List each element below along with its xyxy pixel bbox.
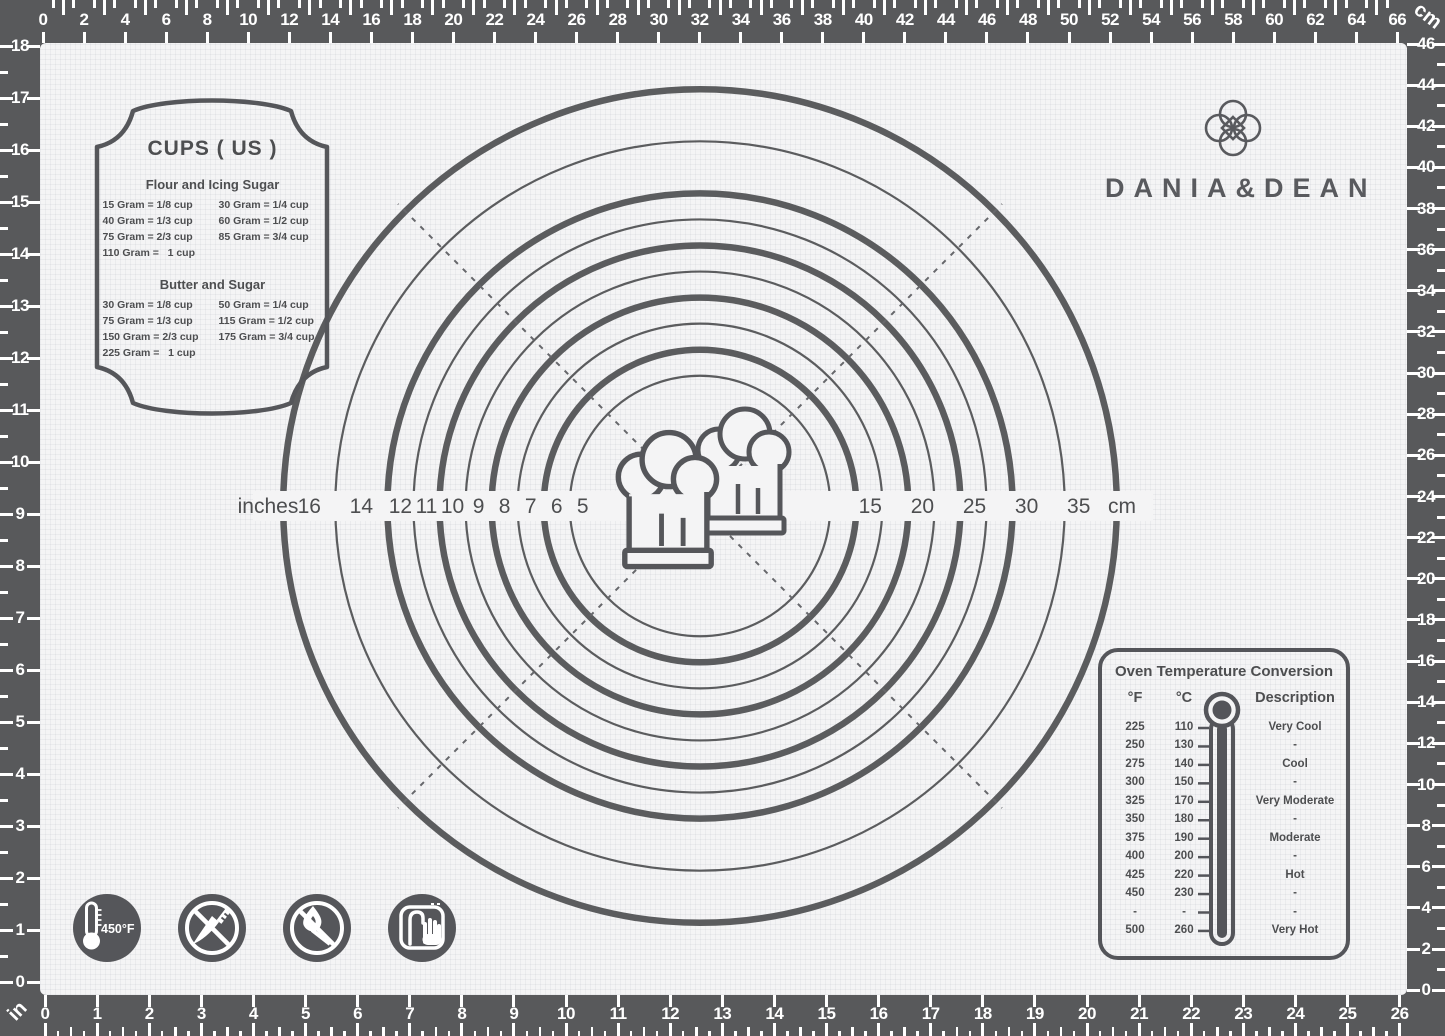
ruler-tick (1345, 0, 1348, 8)
ruler-tick (83, 1031, 86, 1036)
ruler-tick (1437, 968, 1445, 971)
ruler-tick (474, 1031, 477, 1036)
ruler-label: 11 (12, 400, 29, 420)
ruler-tick (0, 435, 8, 438)
ruler-label: 32 (1417, 322, 1435, 342)
ruler-label: 36 (1417, 240, 1435, 260)
ruler-label: 15 (818, 1004, 836, 1024)
ruler-label: 23 (1234, 1004, 1252, 1024)
ruler-tick (591, 1027, 594, 1036)
ruler-label: 26 (568, 10, 586, 30)
ruler-tick (0, 903, 8, 906)
brand-logo: DANIA&DEAN (1105, 98, 1361, 204)
ruler-tick (965, 0, 968, 15)
ruler-tick (0, 71, 8, 74)
ruler-tick (585, 0, 588, 8)
ruler-tick (206, 32, 209, 43)
ruler-left-inches: 1817161514131211109876543210 (0, 0, 40, 1036)
ruler-tick (1191, 32, 1194, 43)
cups-conversion-value: 30 Gram = 1/8 cup (95, 297, 209, 313)
ruler-tick (369, 1031, 372, 1036)
ruler-label: 40 (855, 10, 873, 30)
ruler-tick (0, 591, 8, 594)
ruler-label: 16 (362, 10, 380, 30)
ruler-tick (343, 1031, 346, 1036)
ruler-label: 11 (610, 1004, 627, 1024)
ruler-tick (57, 1031, 60, 1036)
ruler-label: 16 (11, 140, 29, 160)
ruler-label: 21 (1130, 1004, 1148, 1024)
oven-table-cell: Hot (1285, 869, 1304, 881)
ruler-label: 25 (1339, 1004, 1357, 1024)
ruler-tick (317, 1031, 320, 1036)
ruler-tick (555, 0, 558, 15)
ruler-tick (236, 0, 239, 8)
ruler-label: 10 (557, 1004, 575, 1024)
ruler-tick (1177, 1031, 1180, 1036)
ruler-tick (1099, 1031, 1102, 1036)
ruler-label: 8 (457, 1004, 466, 1024)
cups-conversion-row: 75 Gram = 1/3 cup115 Gram = 1/2 cup (85, 313, 340, 329)
ruler-tick (267, 0, 270, 15)
ruler-tick (1216, 1027, 1219, 1036)
ruler-label: 17 (922, 1004, 940, 1024)
ruler-tick (883, 0, 886, 15)
ring-label-35cm: 35 (1067, 495, 1090, 518)
ruler-tick (122, 1027, 125, 1036)
hat-base (704, 518, 784, 533)
oven-table-cell: - (1293, 887, 1297, 899)
ruler-tick (1281, 1031, 1284, 1036)
ruler-tick (503, 0, 506, 8)
ruler-tick (135, 1031, 138, 1036)
ruler-tick (873, 0, 876, 8)
ruler-tick (83, 32, 86, 43)
ruler-tick (0, 695, 8, 698)
ruler-tick (1437, 269, 1445, 272)
oven-table-cell: 230 (1174, 887, 1193, 899)
ruler-tick (942, 1031, 945, 1036)
ruler-label: 28 (1417, 404, 1435, 424)
ruler-tick (44, 1023, 47, 1036)
oven-table-cell: Very Cool (1268, 721, 1321, 733)
ruler-tick (460, 1023, 463, 1036)
ruler-tick (719, 0, 722, 15)
ruler-tick (462, 0, 465, 8)
ruler-tick (1437, 433, 1445, 436)
ruler-tick (213, 1031, 216, 1036)
ruler-tick (0, 643, 8, 646)
ruler-tick (239, 1031, 242, 1036)
ring-label-30cm: 30 (1015, 495, 1038, 518)
ruler-label: 24 (1417, 487, 1435, 507)
ruler-tick (825, 1023, 828, 1036)
ruler-tick (1242, 0, 1245, 8)
ruler-tick (390, 0, 393, 15)
ruler-label: 7 (405, 1004, 414, 1024)
ruler-tick (349, 0, 352, 15)
ruler-label: 60 (1265, 10, 1283, 30)
cups-conversion-value: 30 Gram = 1/4 cup (219, 197, 331, 213)
ruler-label: 22 (1417, 528, 1435, 548)
oven-column-header: Description (1255, 690, 1335, 706)
ruler-tick (154, 0, 157, 8)
ruler-tick (52, 0, 55, 8)
ruler-tick (916, 1031, 919, 1036)
ruler-tick (1086, 1023, 1089, 1036)
ruler-label: 50 (1060, 10, 1078, 30)
oven-table-cell: 150 (1174, 776, 1193, 788)
ruler-tick (1268, 1027, 1271, 1036)
ruler-label: 10 (239, 10, 257, 30)
ruler-tick (575, 32, 578, 43)
ruler-tick (1098, 0, 1101, 8)
ruler-tick (62, 0, 65, 15)
ruler-tick (539, 1027, 542, 1036)
ruler-label: 6 (353, 1004, 362, 1024)
ruler-label: 12 (661, 1004, 679, 1024)
ruler-label: 8 (1422, 816, 1431, 836)
ruler-label: 8 (203, 10, 212, 30)
ruler-tick (1346, 1023, 1349, 1036)
oven-table-cell: 260 (1174, 924, 1193, 936)
ruler-label: 26 (1417, 445, 1435, 465)
ruler-tick (890, 1031, 893, 1036)
ruler-label: 5 (301, 1004, 310, 1024)
ruler-tick (729, 0, 732, 8)
ruler-tick (1252, 0, 1255, 15)
oven-table-cell: 325 (1125, 795, 1144, 807)
ruler-tick (96, 1023, 99, 1036)
ruler-tick (1303, 0, 1306, 8)
ruler-tick (1160, 0, 1163, 8)
oven-table-cell: 275 (1125, 758, 1144, 770)
cups-conversion-row: 30 Gram = 1/8 cup50 Gram = 1/4 cup (85, 297, 340, 313)
ruler-tick (1037, 0, 1040, 8)
oven-table-cell: 110 (1175, 721, 1194, 733)
ruler-tick (903, 1027, 906, 1036)
ruler-label: 48 (1019, 10, 1037, 30)
ruler-label: 46 (978, 10, 996, 30)
ruler-tick (1047, 0, 1050, 15)
ruler-label: 24 (1286, 1004, 1304, 1024)
ruler-label: 10 (1417, 775, 1435, 795)
ruler-tick (1164, 1027, 1167, 1036)
ruler-tick (1073, 1031, 1076, 1036)
hat-band-fill (708, 466, 780, 518)
ruler-tick (669, 1023, 672, 1036)
ruler-tick (1407, 824, 1420, 827)
ruler-tick (27, 669, 40, 672)
ruler-tick (749, 0, 752, 8)
ruler-tick (526, 1031, 529, 1036)
ruler-label: 3 (197, 1004, 206, 1024)
ruler-label: 1 (16, 920, 25, 940)
oven-table-cell: Moderate (1269, 832, 1320, 844)
oven-table-cell: - (1182, 906, 1186, 918)
ruler-tick (0, 617, 13, 620)
ruler-label: 30 (650, 10, 668, 30)
ruler-tick (0, 721, 13, 724)
ruler-tick (27, 773, 40, 776)
ruler-tick (103, 0, 106, 15)
ruler-tick (812, 1031, 815, 1036)
ruler-label: 20 (444, 10, 462, 30)
ruler-tick (1437, 845, 1445, 848)
ruler-tick (1437, 351, 1445, 354)
ruler-label: 13 (713, 1004, 731, 1024)
ruler-tick (1372, 1027, 1375, 1036)
ruler-tick (1307, 1031, 1310, 1036)
ruler-label: 0 (1422, 980, 1431, 1000)
ruler-tick (134, 0, 137, 8)
cups-conversion-value: 60 Gram = 1/2 cup (219, 213, 331, 229)
cups-conversion-value: 175 Gram = 3/4 cup (219, 329, 331, 345)
ruler-tick (1255, 1031, 1258, 1036)
no-knives-icon (178, 894, 246, 962)
ruler-tick (298, 0, 301, 8)
ruler-tick (637, 0, 640, 15)
ruler-tick (1359, 1031, 1362, 1036)
ruler-tick (513, 0, 516, 15)
ruler-tick (1078, 0, 1081, 8)
ruler-tick (1294, 1023, 1297, 1036)
ruler-tick (1398, 1023, 1401, 1036)
ruler-label: 16 (1417, 651, 1435, 671)
ruler-label: 64 (1347, 10, 1365, 30)
ruler-label: 58 (1224, 10, 1242, 30)
ruler-tick (760, 0, 763, 15)
ruler-tick (1407, 865, 1420, 868)
ruler-tick (1232, 32, 1235, 43)
ruler-tick (552, 1031, 555, 1036)
ruler-tick (698, 32, 701, 43)
ruler-tick (934, 0, 937, 8)
ruler-tick (493, 32, 496, 43)
ruler-label: 10 (11, 452, 29, 472)
oven-table-cell: 170 (1174, 795, 1193, 807)
ruler-tick (565, 0, 568, 8)
ruler-tick (985, 32, 988, 43)
ruler-tick (360, 0, 363, 8)
ruler-label: 20 (1078, 1004, 1096, 1024)
ruler-tick (330, 1027, 333, 1036)
ruler-tick (304, 1023, 307, 1036)
ruler-label: 13 (11, 296, 29, 316)
cups-conversion-value (219, 245, 331, 261)
ruler-tick (862, 32, 865, 43)
ruler-tick (1437, 557, 1445, 560)
oven-table-cell: 300 (1125, 776, 1144, 788)
ruler-label: 12 (1417, 733, 1435, 753)
cups-section-heading: Flour and Icing Sugar (85, 177, 340, 192)
ruler-tick (0, 513, 13, 516)
hand-wash-only-icon (388, 894, 456, 962)
ruler-tick (682, 1031, 685, 1036)
ruler-tick (708, 0, 711, 8)
ruler-tick (1293, 0, 1296, 15)
ruler-label: 2 (16, 868, 25, 888)
ruler-label: 22 (1182, 1004, 1200, 1024)
ruler-tick (852, 0, 855, 8)
ruler-tick (760, 1031, 763, 1036)
ruler-label: 7 (16, 608, 25, 628)
ruler-label: 2 (145, 1004, 154, 1024)
ruler-tick (1242, 1023, 1245, 1036)
brand-name: DANIA&DEAN (1105, 173, 1370, 204)
ruler-tick (0, 487, 8, 490)
ruler-label: 14 (1417, 692, 1435, 712)
ruler-label: 56 (1183, 10, 1201, 30)
cups-conversion-value: 115 Gram = 1/2 cup (219, 313, 331, 329)
ruler-tick (647, 0, 650, 8)
ruler-tick (175, 0, 178, 8)
ruler-tick (914, 0, 917, 8)
cups-section-heading: Butter and Sugar (85, 277, 340, 292)
ruler-tick (996, 0, 999, 8)
ruler-label: 28 (609, 10, 627, 30)
ruler-tick (27, 981, 40, 984)
ruler-tick (1437, 104, 1445, 107)
ruler-tick (565, 1023, 568, 1036)
ring-label-12in: 12 (389, 495, 412, 518)
ruler-tick (0, 565, 13, 568)
ruler-label: 24 (527, 10, 545, 30)
ruler-tick (487, 1027, 490, 1036)
oven-table-cell: 400 (1125, 850, 1144, 862)
ring-label-8in: 8 (499, 495, 511, 518)
ruler-tick (226, 1027, 229, 1036)
ruler-label: 14 (765, 1004, 783, 1024)
ruler-tick (288, 32, 291, 43)
cups-conversion-value: 75 Gram = 1/3 cup (95, 313, 209, 329)
ruler-tick (578, 1031, 581, 1036)
ruler-tick (544, 0, 547, 8)
ruler-tick (1112, 1027, 1115, 1036)
ruler-tick (252, 1023, 255, 1036)
ruler-tick (500, 1031, 503, 1036)
oven-table-cell: - (1293, 813, 1297, 825)
ruler-label: 4 (1422, 898, 1431, 918)
ruler-label: 14 (321, 10, 339, 30)
ruler-tick (667, 0, 670, 8)
oven-column-header: °C (1176, 690, 1192, 706)
ruler-tick (356, 1023, 359, 1036)
ruler-tick (113, 0, 116, 8)
ruler-tick (27, 409, 40, 412)
ruler-label: 6 (16, 660, 25, 680)
ruler-tick (27, 929, 40, 932)
ruler-tick (708, 1031, 711, 1036)
ruler-tick (1151, 1031, 1154, 1036)
ruler-tick (1437, 516, 1445, 519)
ruler-tick (1432, 906, 1445, 909)
ruler-tick (604, 1031, 607, 1036)
oven-table-cell: 500 (1125, 924, 1144, 936)
ruler-tick (70, 1027, 73, 1036)
ruler-tick (1334, 0, 1337, 15)
ruler-tick (442, 0, 445, 8)
ruler-tick (109, 1031, 112, 1036)
ruler-tick (1273, 32, 1276, 43)
ruler-label: 0 (16, 972, 25, 992)
ruler-tick (216, 0, 219, 8)
cups-conversion-value: 150 Gram = 2/3 cup (95, 329, 209, 345)
ring-label-11in: 11 (416, 495, 438, 518)
ruler-bottom-inches: 0123456789101112131415161718192021222324… (0, 995, 1445, 1036)
ruler-tick (0, 981, 13, 984)
ruler-label: 9 (16, 504, 25, 524)
ruler-tick (1385, 1031, 1388, 1036)
ruler-tick (747, 1027, 750, 1036)
ruler-label: 54 (1142, 10, 1160, 30)
ruler-tick (780, 32, 783, 43)
ruler-tick (1437, 392, 1445, 395)
oven-table-cell: Very Moderate (1256, 795, 1335, 807)
ruler-label: 38 (814, 10, 832, 30)
ruler-tick (1437, 598, 1445, 601)
ruler-tick (842, 0, 845, 15)
ruler-label: 36 (773, 10, 791, 30)
ruler-tick (626, 0, 629, 8)
ruler-tick (1262, 0, 1265, 8)
ruler-tick (401, 0, 404, 8)
circle-axis-label-inches: inches (238, 495, 299, 518)
ring-label-5in: 5 (577, 495, 589, 518)
oven-table-cell: 425 (1125, 869, 1144, 881)
ruler-tick (1320, 1027, 1323, 1036)
ruler-tick (1047, 1031, 1050, 1036)
ruler-tick (148, 1023, 151, 1036)
ruler-tick (339, 0, 342, 8)
ruler-tick (27, 617, 40, 620)
max-temperature-icon: 450°F (73, 894, 141, 962)
ring-label-15cm: 15 (859, 495, 882, 518)
ruler-label: 18 (1417, 610, 1435, 630)
ruler-tick (472, 0, 475, 15)
cups-conversion-value (219, 345, 331, 361)
ruler-label: 18 (403, 10, 421, 30)
ruler-tick (981, 1023, 984, 1036)
ring-label-7in: 7 (525, 495, 537, 518)
ruler-tick (448, 1031, 451, 1036)
ruler-tick (161, 1031, 164, 1036)
ruler-tick (903, 32, 906, 43)
ruler-label: 6 (162, 10, 171, 30)
ruler-right-cm: 4644424038363432302826242220181614121086… (1407, 0, 1445, 1036)
ruler-tick (0, 773, 13, 776)
oven-table-cell: - (1293, 906, 1297, 918)
cups-conversion-value: 85 Gram = 3/4 cup (219, 229, 331, 245)
ruler-tick (1033, 1023, 1036, 1036)
ruler-top-cm: 0246810121416182022242628303234363840424… (0, 0, 1445, 43)
cups-title: CUPS ( US ) (85, 137, 340, 161)
ruler-tick (995, 1031, 998, 1036)
ring-label-9in: 9 (473, 495, 485, 518)
ruler-tick (790, 0, 793, 8)
ruler-tick (200, 1023, 203, 1036)
ruler-tick (851, 1027, 854, 1036)
ruler-label: 2 (1422, 939, 1431, 959)
ruler-tick (421, 0, 424, 8)
ruler-tick (174, 1027, 177, 1036)
thermometer-stem-fill (1217, 724, 1227, 938)
ruler-tick (370, 32, 373, 43)
ruler-tick (975, 0, 978, 8)
max-temperature-label: 450°F (101, 922, 135, 936)
cups-conversion-panel: CUPS ( US ) Flour and Icing Sugar15 Gram… (85, 95, 340, 361)
ruler-tick (195, 0, 198, 8)
